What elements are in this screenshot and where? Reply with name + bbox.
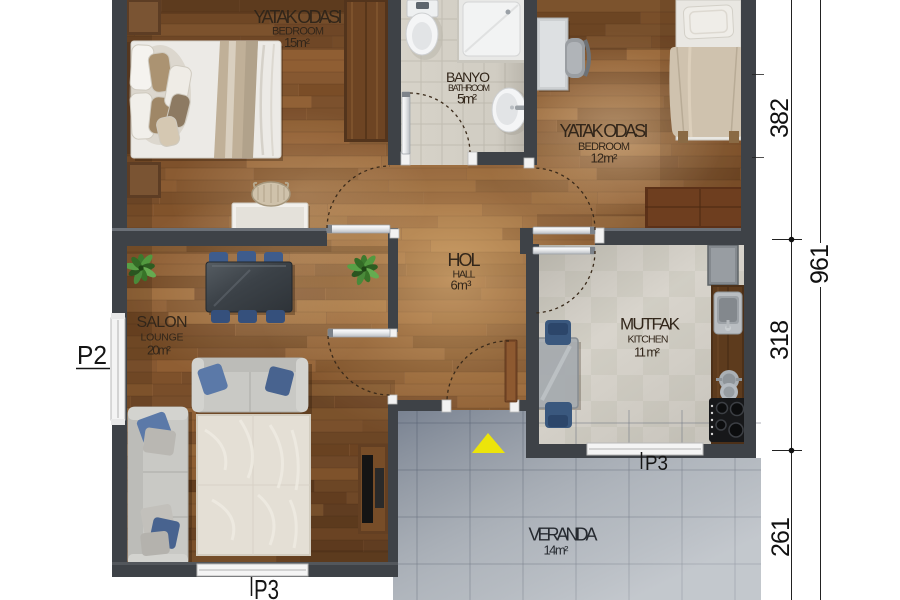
svg-text:HOL: HOL: [448, 250, 481, 270]
svg-text:15m²: 15m²: [284, 35, 311, 50]
svg-text:261: 261: [767, 517, 795, 557]
svg-text:11 m²: 11 m²: [634, 345, 661, 360]
svg-text:12m²: 12m²: [591, 151, 619, 166]
svg-text:961: 961: [806, 244, 834, 284]
svg-text:382: 382: [766, 98, 794, 138]
svg-text:6m³: 6m³: [451, 278, 473, 293]
svg-text:P3: P3: [254, 574, 279, 600]
svg-text:5m²: 5m²: [457, 91, 477, 107]
svg-text:20m²: 20m²: [147, 343, 172, 358]
svg-text:MUTFAK: MUTFAK: [620, 315, 681, 334]
svg-text:YATAK ODASI: YATAK ODASI: [254, 7, 343, 27]
svg-text:318: 318: [766, 320, 794, 360]
svg-text:14m²: 14m²: [544, 543, 570, 558]
svg-text:YATAK ODASI: YATAK ODASI: [560, 121, 649, 141]
svg-text:SALON: SALON: [137, 314, 188, 331]
svg-text:P2: P2: [77, 340, 107, 370]
svg-text:P3: P3: [645, 452, 668, 475]
svg-text:VERANDA: VERANDA: [529, 525, 598, 545]
